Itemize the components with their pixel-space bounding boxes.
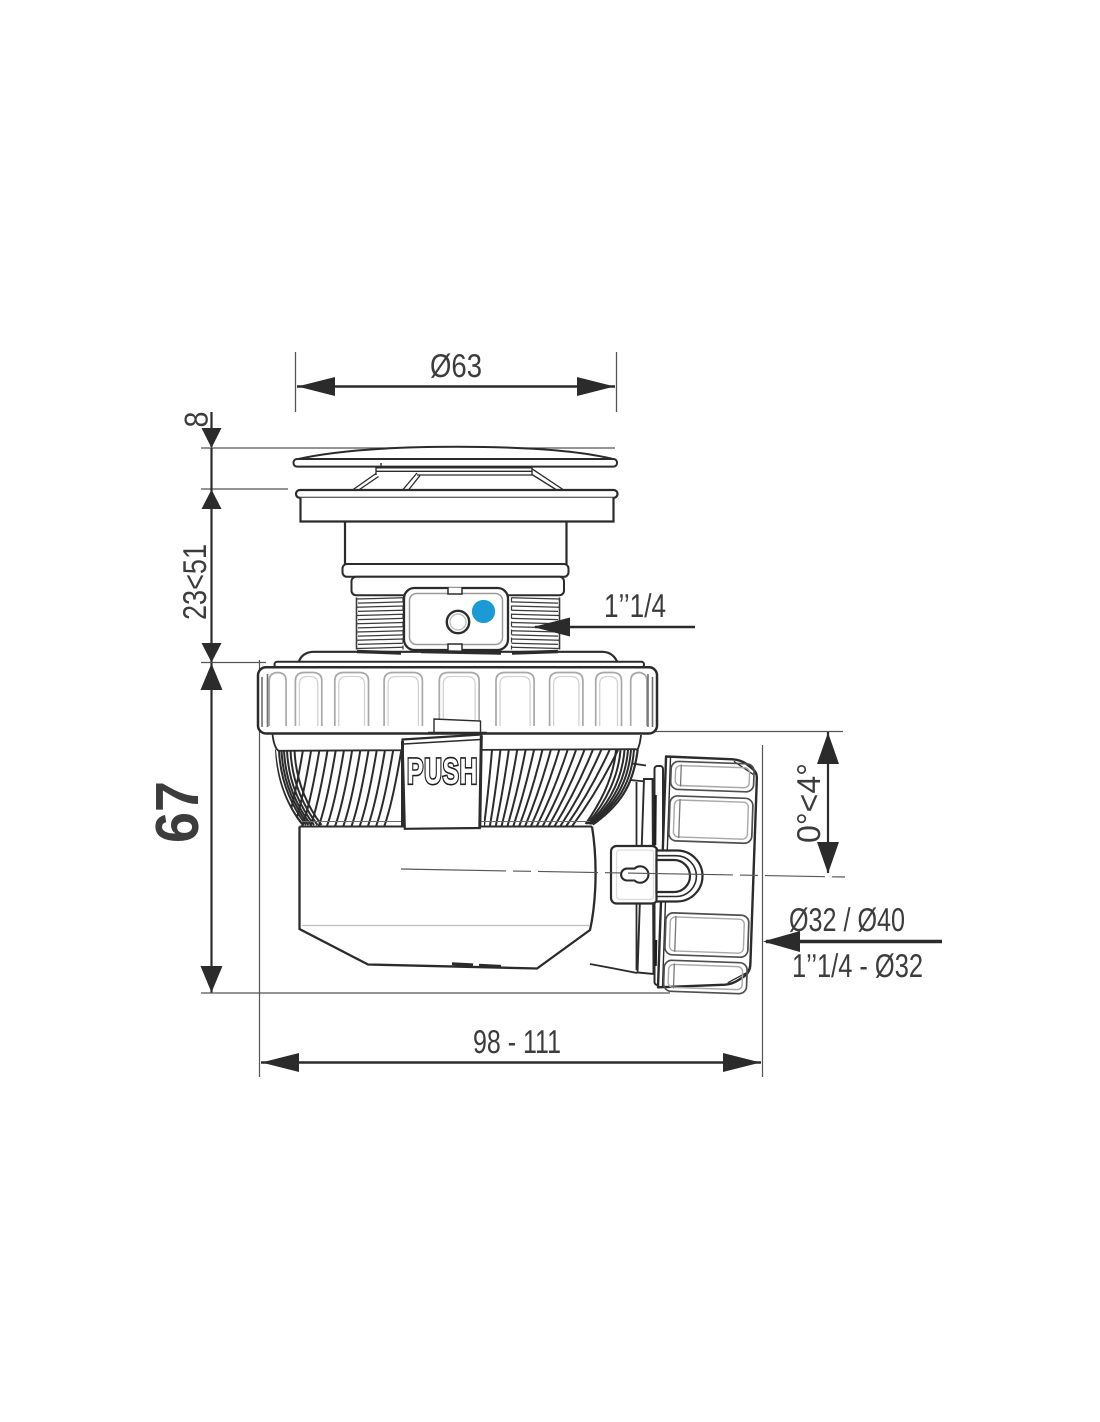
svg-text:8: 8 xyxy=(178,412,215,428)
svg-text:0°<4°: 0°<4° xyxy=(790,763,827,843)
svg-text:Ø63: Ø63 xyxy=(430,347,482,384)
svg-text:23<51: 23<51 xyxy=(176,544,213,620)
svg-text:1’’1/4: 1’’1/4 xyxy=(604,587,666,624)
svg-text:PUSH: PUSH xyxy=(407,750,478,791)
svg-text:Ø32 / Ø40: Ø32 / Ø40 xyxy=(789,901,905,938)
svg-text:67: 67 xyxy=(143,781,211,843)
svg-text:98 - 111: 98 - 111 xyxy=(473,1023,561,1060)
svg-text:1’’1/4 - Ø32: 1’’1/4 - Ø32 xyxy=(792,947,923,984)
